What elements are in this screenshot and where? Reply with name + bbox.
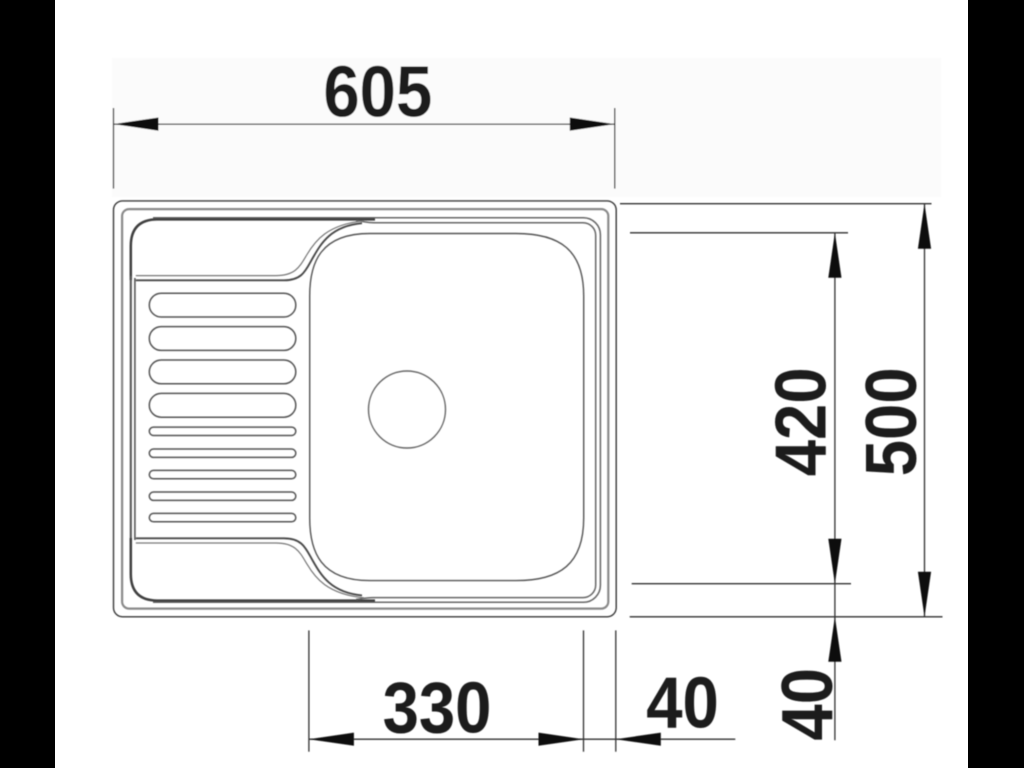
svg-text:40: 40: [646, 662, 719, 743]
svg-text:420: 420: [761, 367, 842, 476]
svg-text:500: 500: [851, 367, 932, 476]
svg-text:330: 330: [383, 667, 492, 748]
svg-text:605: 605: [323, 51, 432, 132]
svg-text:40: 40: [767, 668, 848, 741]
